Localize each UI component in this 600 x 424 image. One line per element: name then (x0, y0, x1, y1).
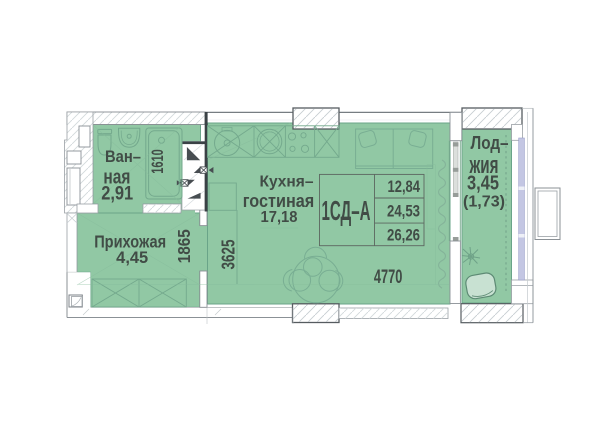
svg-text:4770: 4770 (374, 266, 403, 288)
svg-text:1СД–А: 1СД–А (322, 195, 371, 226)
svg-text:3,45: 3,45 (467, 172, 499, 195)
svg-text:1865: 1865 (174, 229, 194, 263)
svg-text:гостиная: гостиная (243, 190, 315, 211)
svg-text:2,91: 2,91 (101, 183, 133, 204)
svg-text:26,26: 26,26 (387, 225, 420, 244)
svg-text:Ван–: Ван– (105, 148, 141, 166)
svg-text:Кухня–: Кухня– (260, 174, 314, 191)
svg-text:1610: 1610 (149, 149, 167, 174)
svg-text:24,53: 24,53 (387, 201, 420, 220)
svg-text:3625: 3625 (217, 240, 238, 270)
svg-text:17,18: 17,18 (261, 209, 298, 226)
svg-text:4,45: 4,45 (116, 249, 148, 267)
svg-text:Лод–: Лод– (471, 133, 509, 153)
svg-text:(1,73): (1,73) (463, 194, 505, 211)
svg-text:12,84: 12,84 (388, 177, 421, 196)
